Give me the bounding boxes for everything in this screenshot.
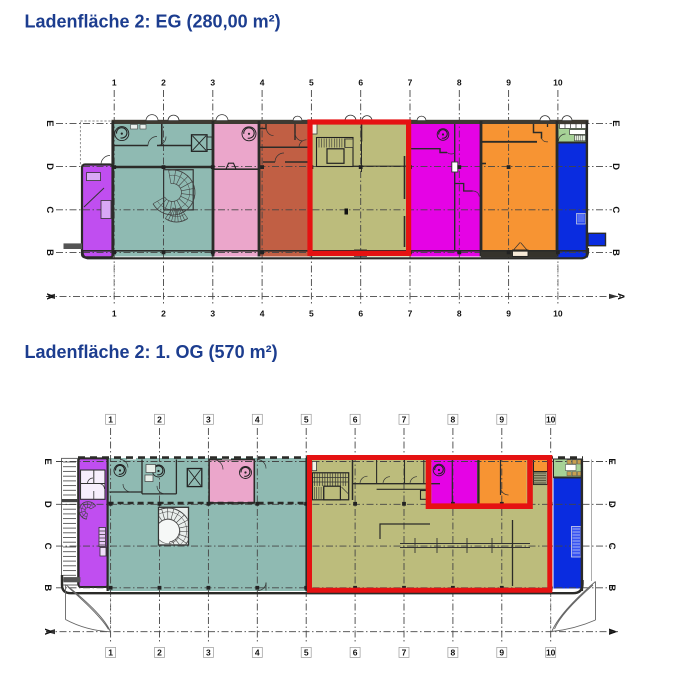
svg-text:D: D <box>610 163 621 170</box>
svg-text:6: 6 <box>353 647 358 657</box>
svg-text:A: A <box>44 293 55 300</box>
svg-text:7: 7 <box>408 78 413 88</box>
svg-text:B: B <box>610 249 621 256</box>
svg-text:E: E <box>606 458 617 464</box>
svg-text:8: 8 <box>457 309 462 319</box>
svg-text:2: 2 <box>157 647 162 657</box>
svg-text:4: 4 <box>255 647 260 657</box>
svg-text:1: 1 <box>112 78 117 88</box>
svg-text:10: 10 <box>553 78 563 88</box>
svg-text:10: 10 <box>546 414 556 424</box>
svg-text:4: 4 <box>255 414 260 424</box>
svg-text:D: D <box>42 501 53 508</box>
svg-text:7: 7 <box>408 309 413 319</box>
svg-text:1: 1 <box>112 309 117 319</box>
svg-text:B: B <box>42 584 53 591</box>
svg-text:4: 4 <box>260 78 265 88</box>
svg-text:6: 6 <box>353 414 358 424</box>
svg-text:D: D <box>44 163 55 170</box>
svg-text:A: A <box>615 293 626 300</box>
svg-text:E: E <box>42 458 53 464</box>
svg-text:1: 1 <box>108 414 113 424</box>
svg-text:2: 2 <box>161 78 166 88</box>
svg-text:Ladenfläche 2: EG (280,00 m²): Ladenfläche 2: EG (280,00 m²) <box>25 12 281 32</box>
svg-text:6: 6 <box>358 78 363 88</box>
svg-text:C: C <box>42 543 53 550</box>
svg-text:9: 9 <box>499 414 504 424</box>
svg-text:C: C <box>44 206 55 213</box>
svg-text:2: 2 <box>157 414 162 424</box>
svg-text:B: B <box>44 249 55 256</box>
svg-text:2: 2 <box>161 309 166 319</box>
svg-text:7: 7 <box>402 414 407 424</box>
svg-text:8: 8 <box>457 78 462 88</box>
svg-text:C: C <box>606 543 617 550</box>
svg-text:3: 3 <box>210 309 215 319</box>
svg-text:1: 1 <box>108 647 113 657</box>
svg-text:8: 8 <box>451 414 456 424</box>
svg-text:7: 7 <box>402 647 407 657</box>
svg-text:E: E <box>44 120 55 126</box>
svg-text:5: 5 <box>304 414 309 424</box>
svg-text:A: A <box>606 628 617 635</box>
svg-text:10: 10 <box>546 647 556 657</box>
svg-text:5: 5 <box>309 78 314 88</box>
svg-text:10: 10 <box>553 309 563 319</box>
svg-text:6: 6 <box>358 309 363 319</box>
svg-text:3: 3 <box>206 647 211 657</box>
svg-text:D: D <box>606 501 617 508</box>
svg-text:9: 9 <box>499 647 504 657</box>
svg-text:8: 8 <box>451 647 456 657</box>
svg-text:A: A <box>42 628 53 635</box>
svg-text:3: 3 <box>206 414 211 424</box>
svg-text:Ladenfläche 2: 1. OG (570 m²): Ladenfläche 2: 1. OG (570 m²) <box>25 342 278 362</box>
svg-text:9: 9 <box>506 309 511 319</box>
svg-text:C: C <box>610 206 621 213</box>
svg-text:5: 5 <box>309 309 314 319</box>
svg-text:9: 9 <box>506 78 511 88</box>
svg-text:3: 3 <box>210 78 215 88</box>
svg-text:B: B <box>606 584 617 591</box>
svg-text:5: 5 <box>304 647 309 657</box>
svg-text:E: E <box>610 120 621 126</box>
svg-text:4: 4 <box>260 309 265 319</box>
